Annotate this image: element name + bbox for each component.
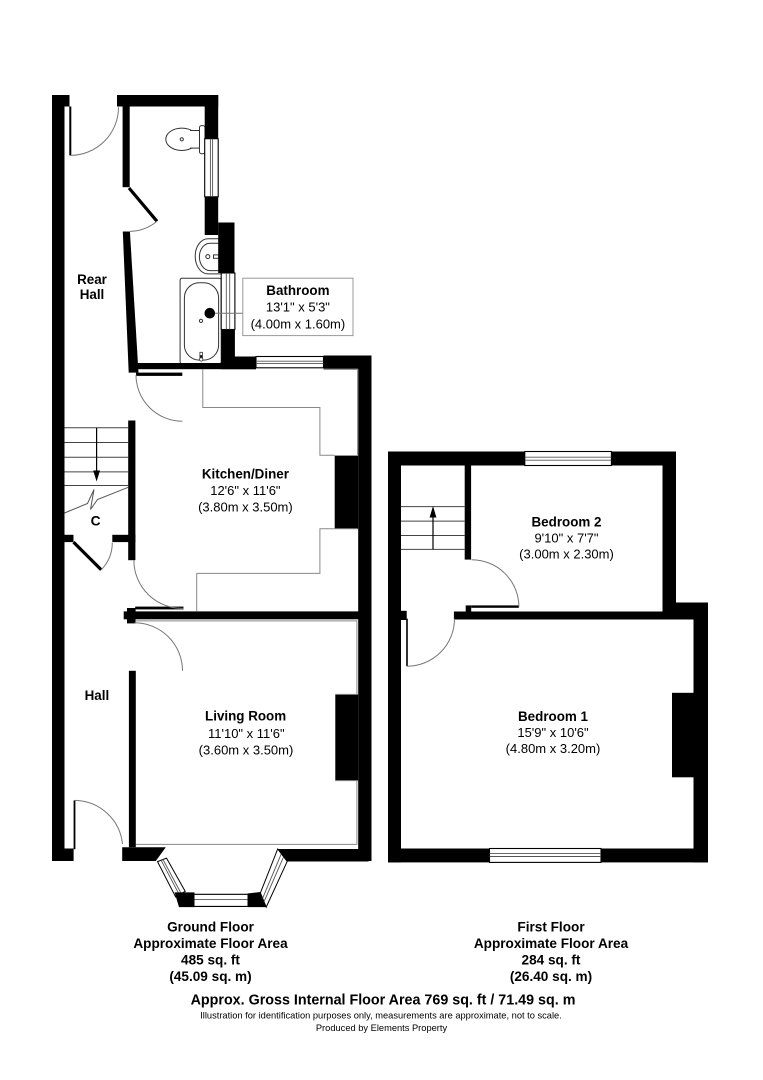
svg-text:(3.00m x 2.30m): (3.00m x 2.30m) — [519, 546, 614, 561]
svg-text:Produced by Elements Property: Produced by Elements Property — [316, 1023, 448, 1033]
svg-text:First Floor: First Floor — [517, 920, 585, 935]
svg-text:15'9" x 10'6": 15'9" x 10'6" — [517, 725, 589, 740]
svg-text:Hall: Hall — [80, 287, 105, 302]
svg-text:C: C — [91, 514, 101, 529]
svg-text:(3.80m x 3.50m): (3.80m x 3.50m) — [198, 499, 293, 514]
svg-text:Approx. Gross Internal Floor A: Approx. Gross Internal Floor Area 769 sq… — [191, 993, 576, 1009]
svg-text:Ground Floor: Ground Floor — [167, 920, 255, 935]
svg-text:Hall: Hall — [85, 688, 110, 703]
svg-text:(4.00m x 1.60m): (4.00m x 1.60m) — [251, 317, 346, 332]
svg-text:Approximate Floor Area: Approximate Floor Area — [474, 936, 629, 951]
svg-text:Bathroom: Bathroom — [266, 283, 329, 298]
svg-text:Illustration for identificatio: Illustration for identification purposes… — [200, 1011, 562, 1021]
svg-text:(45.09 sq. m): (45.09 sq. m) — [169, 969, 251, 984]
svg-text:485 sq. ft: 485 sq. ft — [181, 953, 240, 968]
svg-text:Bedroom 2: Bedroom 2 — [532, 515, 602, 530]
svg-text:12'6" x 11'6": 12'6" x 11'6" — [210, 483, 281, 498]
svg-text:Living Room: Living Room — [205, 708, 286, 723]
svg-text:Bedroom 1: Bedroom 1 — [518, 709, 588, 724]
svg-text:11'10" x 11'6": 11'10" x 11'6" — [208, 726, 285, 741]
svg-text:(26.40 sq. m): (26.40 sq. m) — [510, 969, 592, 984]
svg-text:(3.60m x 3.50m): (3.60m x 3.50m) — [199, 743, 294, 758]
svg-text:9'10" x 7'7": 9'10" x 7'7" — [534, 530, 598, 545]
svg-text:Approximate Floor Area: Approximate Floor Area — [133, 936, 288, 951]
svg-text:Rear: Rear — [77, 272, 108, 287]
svg-text:13'1" x 5'3": 13'1" x 5'3" — [266, 299, 330, 314]
svg-text:Kitchen/Diner: Kitchen/Diner — [202, 467, 290, 482]
svg-text:284 sq. ft: 284 sq. ft — [522, 953, 581, 968]
svg-text:(4.80m x 3.20m): (4.80m x 3.20m) — [506, 741, 601, 756]
